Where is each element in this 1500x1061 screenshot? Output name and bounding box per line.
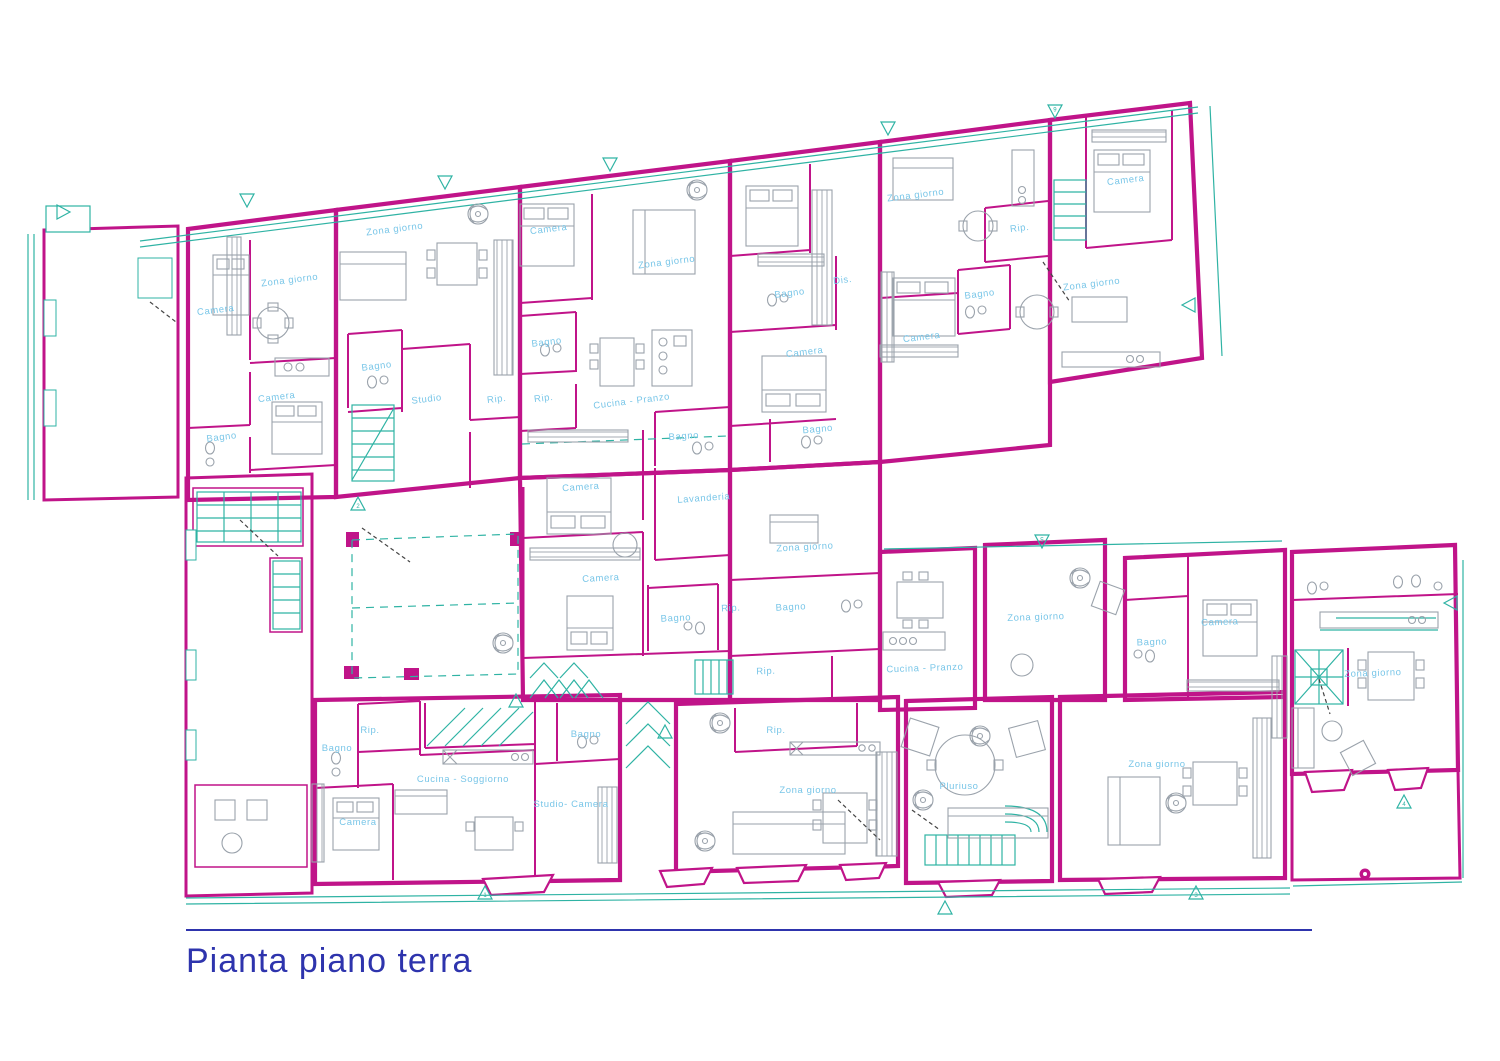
room-label: Zona giorno [779,785,836,796]
room-label: Bagno [668,430,699,443]
chevron-ramp [626,702,670,768]
survey-marker: 4 [1397,795,1411,808]
room-label: Zona giorno [1063,276,1121,294]
room-label: Zona giorno [887,187,945,205]
dining-table [590,338,644,386]
room-label: Bagno [802,423,833,437]
unit-a2-outline [336,187,520,497]
bed [762,356,826,412]
survey-marker [240,194,254,207]
room-label: Cucina - Pranzo [593,391,671,411]
room-label: Bagno [571,729,601,740]
svg-text:3: 3 [1194,893,1198,899]
survey-marker [881,122,895,135]
window-slot [186,730,196,760]
room-label: Bagno [531,335,563,350]
stair-a6 [1054,180,1086,240]
room-label: Cucina - Soggiorno [417,774,509,785]
svg-text:6: 6 [1053,105,1057,111]
room-label: Camera [1106,173,1145,188]
room-label: Studio [411,392,443,407]
svg-text:5: 5 [1040,535,1044,541]
title-rule [186,929,1312,931]
room-label: Camera [562,481,600,495]
kitchen-counter [1062,352,1160,367]
survey-marker: 2 [351,497,365,510]
room-label: Rip. [1009,222,1029,235]
room-label: Rip. [721,603,741,615]
kitchen-column [1253,718,1271,858]
radiator [530,548,640,560]
ceiling-fan-icon [1070,568,1090,588]
room-label: Pluriuso [939,781,978,792]
radiator [880,345,958,357]
annex-north-west [46,206,90,232]
sofa [1292,708,1314,768]
room-label: Bagno [361,359,393,374]
room-label: Camera [257,390,296,405]
room-label: Rip. [360,725,379,736]
unit-a4-south-outline [730,462,880,700]
svg-text:4: 4 [1402,802,1406,808]
sofa [733,812,845,854]
sofa [770,515,818,543]
ceiling-fan-icon [493,633,513,653]
radiator [1187,680,1279,691]
stair-c5-spiral [1295,650,1343,704]
window-slot [186,650,196,680]
unit-c4-outline [1060,692,1285,880]
ceiling-fan-icon [913,790,933,810]
room-label: Bagno [1136,636,1167,648]
radiator [528,430,628,442]
wardrobe [227,237,241,335]
room-label: Rip. [486,393,506,406]
bed [893,278,955,336]
ceiling-fan-icon [695,831,715,851]
room-label: Zona giorno [776,541,834,555]
ceiling-fan-icon [710,713,730,733]
window-slot [44,300,56,336]
dining-table [466,817,523,850]
kitchen-counter [883,632,945,650]
room-label: Dis. [833,274,853,287]
survey-marker: 6 [1048,105,1062,118]
window-slot [186,530,196,560]
sofa [948,808,1048,838]
stair-mid [530,660,733,698]
room-label: Bagno [322,743,352,754]
north-window-band [140,107,1198,247]
armchair [1091,581,1124,614]
svg-text:2: 2 [356,504,360,510]
sofa [1072,297,1127,322]
room-label: Rip. [766,725,785,736]
round-table [253,303,293,343]
room-label: Zona giorno [261,272,319,290]
page-title: Pianta piano terra [186,942,472,981]
room-label: Camera [902,330,941,345]
round-table [1322,721,1342,741]
stair-c3 [925,806,1047,865]
room-label: Camera [529,222,568,237]
svg-text:1: 1 [483,893,487,899]
room-label: Bagno [775,601,806,614]
sofa [340,252,406,300]
round-table [1011,654,1033,676]
radiator [1092,130,1166,142]
ceiling-fan-icon [687,180,707,200]
room-labels-layer: CameraZona giornoCameraBagnoZona giornoB… [196,173,1401,828]
wardrobe [494,240,513,375]
bed [272,402,322,454]
room-label: Bagno [660,612,691,625]
survey-marker [938,901,952,914]
bed [746,186,798,246]
room-label: Bagno [774,286,806,301]
room-label: Camera [1201,616,1239,628]
room-label: Camera [785,345,824,360]
courtyard-dashed-outline [352,534,518,678]
kitchen-island [652,330,692,386]
bed [567,596,613,650]
sofa [395,790,447,814]
room-cutout-3 [195,785,307,867]
sofa [1108,777,1160,845]
radiator [758,254,824,266]
room-label: Zona giorno [366,221,424,239]
stair-c1 [427,708,533,746]
survey-marker [603,158,617,171]
survey-marker [438,176,452,189]
stairwell-cutout-2 [270,558,302,632]
room-label: Camera [582,572,620,585]
survey-marker [1182,298,1195,312]
ceiling-fan-icon [468,204,488,224]
armchair [1009,721,1046,758]
room-label: Lavanderia [677,491,731,506]
room-label: Zona giorno [1007,611,1065,624]
window-slot [44,390,56,426]
room-label: Rip. [756,666,776,678]
room-label: Camera [339,817,377,828]
unit-a6-outline [1050,103,1202,382]
room-label: Studio- Camera [534,799,609,810]
room-label: Zona giorno [638,254,696,272]
room-label: Bagno [964,287,996,302]
room-label: Bagno [206,430,238,445]
wardrobe [312,784,324,862]
kitchen-counter [1012,150,1034,206]
dining-table [1183,762,1247,805]
unit-c5-outline [1292,545,1458,774]
dining-table [897,572,943,628]
kitchen-column [876,752,897,856]
round-table [959,211,997,241]
hatch-areas [44,206,312,896]
gate-knob-center [1363,872,1367,876]
unit-c3-outline [906,697,1052,883]
furniture [206,130,1443,863]
room-label: Zona giorno [1344,667,1402,680]
dining-table [427,243,487,285]
radiator [1272,656,1287,738]
stair-a2 [352,405,394,481]
survey-marker: 3 [1189,886,1203,899]
room-label: Rip. [533,392,553,405]
room-label: Cucina - Pranzo [886,662,963,676]
stair-cutout-west [138,258,172,298]
room-label: Zona giorno [1128,759,1185,770]
ceiling-fan-icon [1166,793,1186,813]
drawing-sheet: 652134 CameraZona giornoCameraBagnoZona … [0,0,1500,1061]
pillar [404,668,419,680]
unit-a1-outline [188,210,336,500]
floor-plan: 652134 CameraZona giornoCameraBagnoZona … [0,0,1500,1061]
kitchen-counter [1320,612,1438,628]
